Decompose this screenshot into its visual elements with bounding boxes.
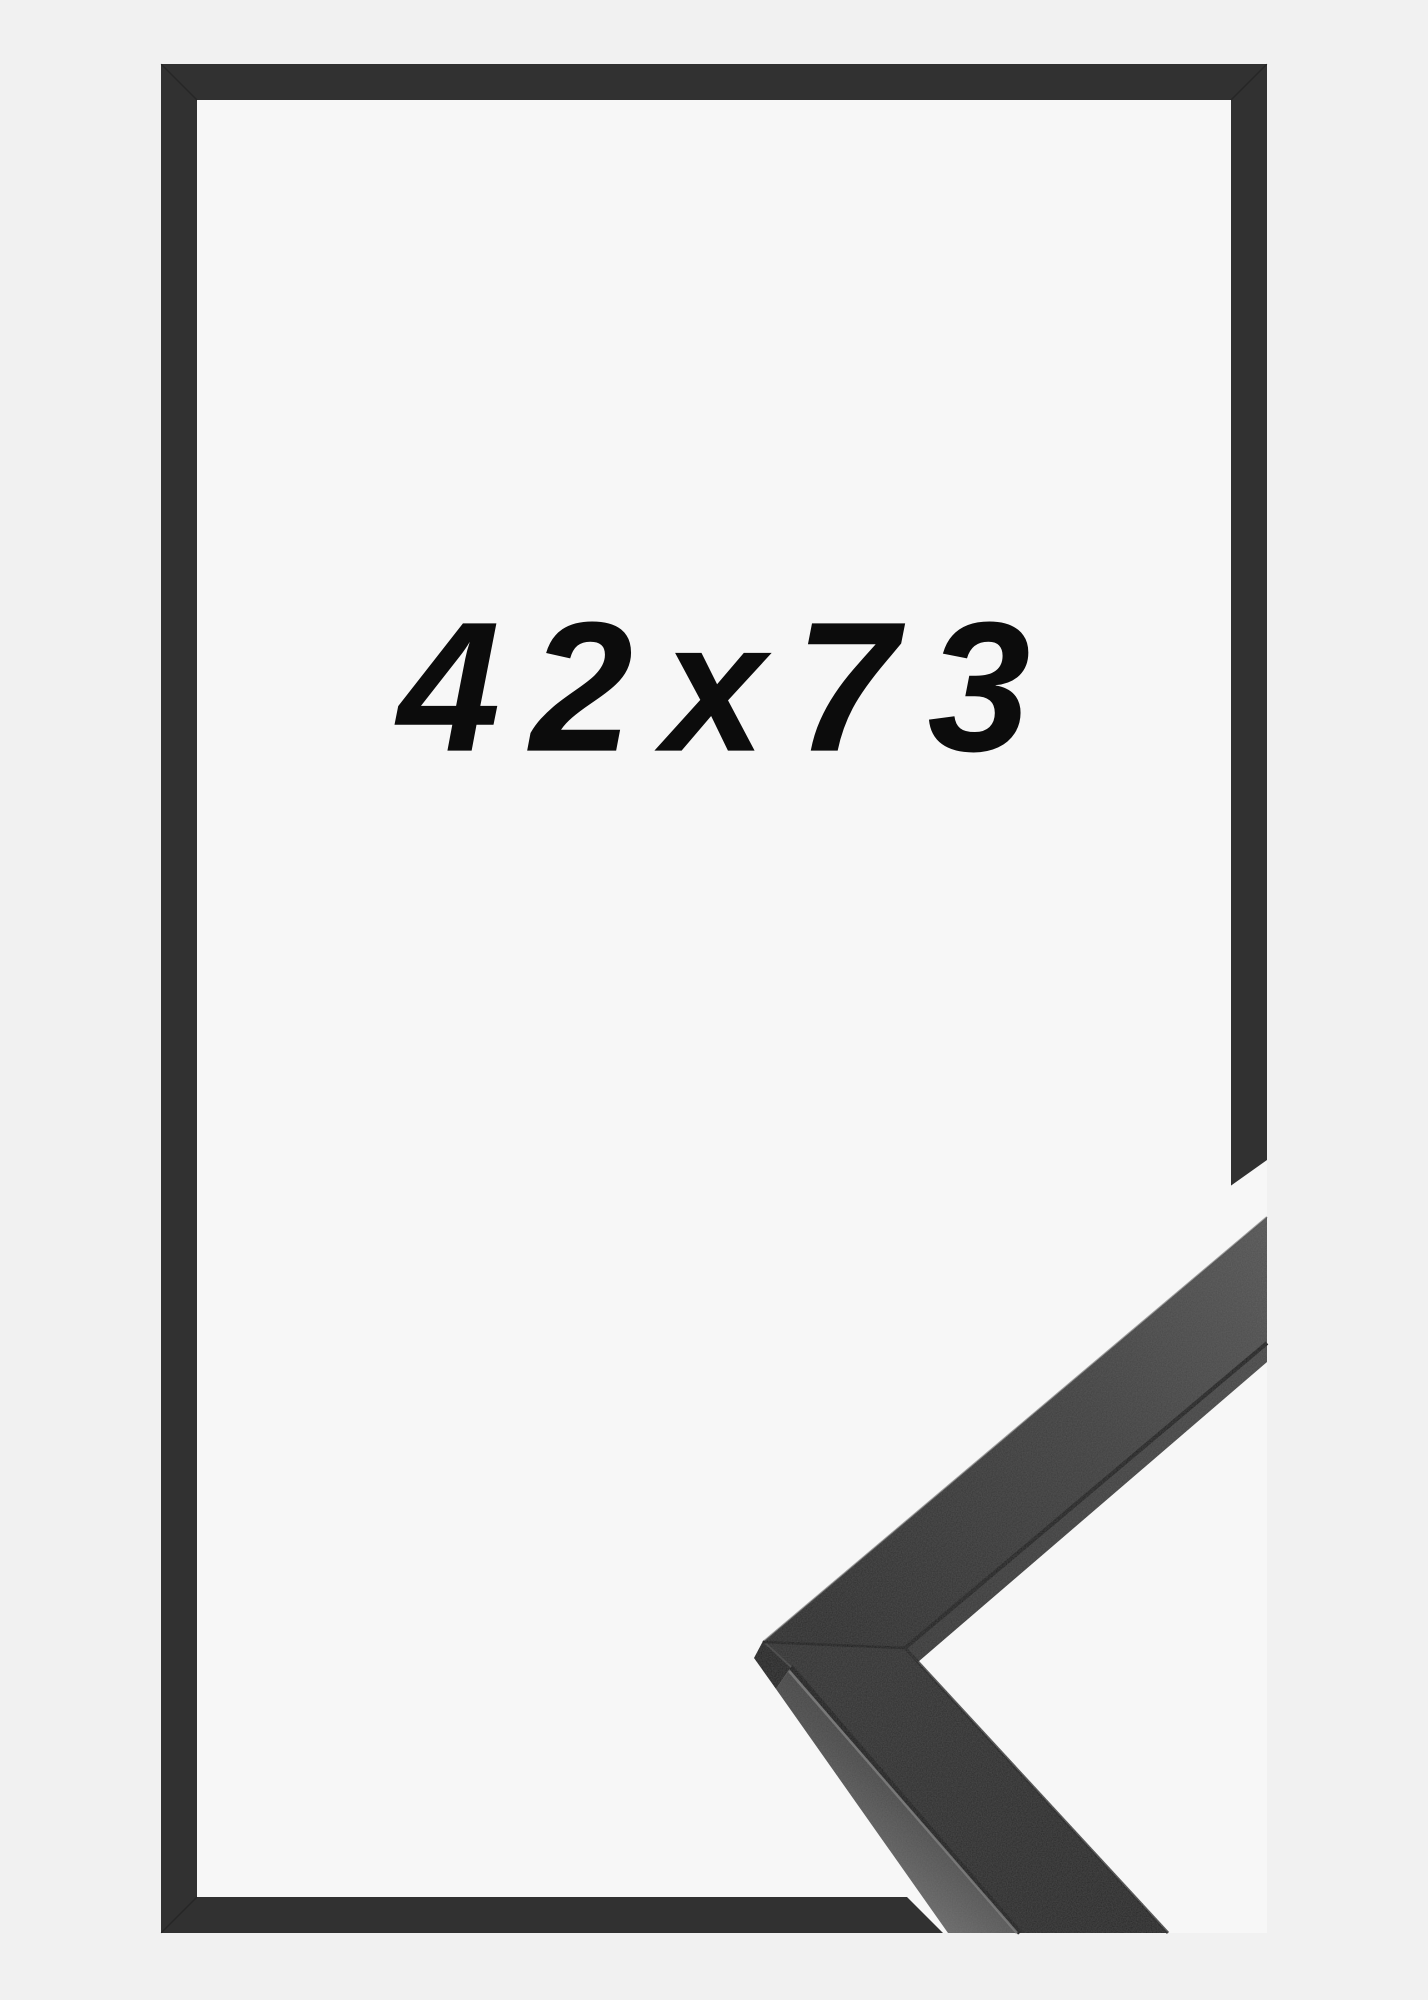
frame-illustration [0,0,1428,2000]
product-image: 42x73 [0,0,1428,2000]
